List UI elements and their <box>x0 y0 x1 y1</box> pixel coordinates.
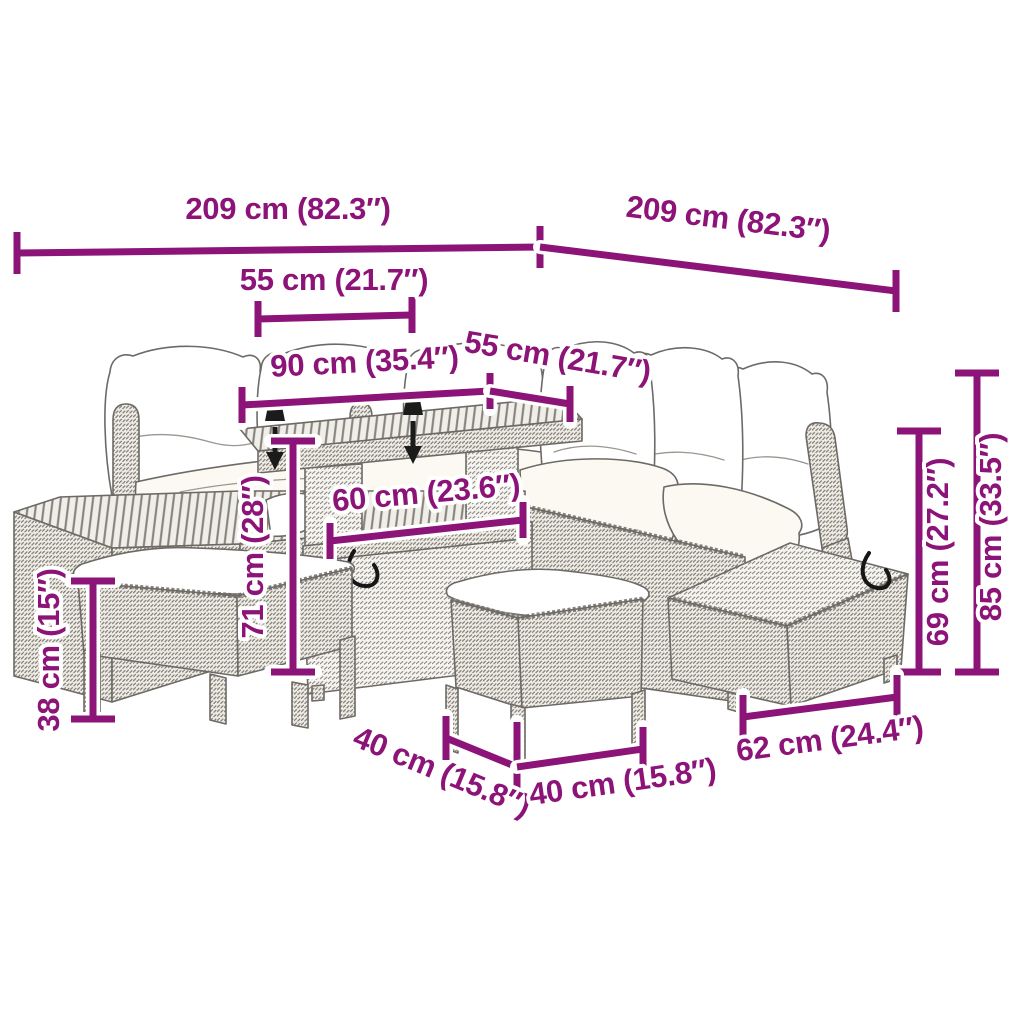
stool-leg <box>210 674 226 724</box>
front-stool <box>446 569 649 766</box>
dimension-seat-frame-height: 69 cm (27.2″) <box>897 431 955 672</box>
stool-leg <box>340 636 355 719</box>
dimension-total-height: 85 cm (33.5″) <box>955 373 1008 672</box>
stool-leg <box>292 682 308 728</box>
dimension-diagram-page: 209 cm (82.3″) 209 cm (82.3″) 55 cm (21.… <box>0 0 1024 1024</box>
dimension-seat-width: 55 cm (21.7″) <box>240 262 428 337</box>
storage-foot <box>312 685 324 701</box>
dimension-stool-width: 40 cm (15.8″) <box>517 727 718 812</box>
dimension-label: 38 cm (15″) <box>31 568 66 731</box>
dimension-label: 85 cm (33.5″) <box>973 433 1008 621</box>
dimension-label: 55 cm (21.7″) <box>240 262 428 297</box>
furniture-line-art <box>14 342 908 766</box>
dimension-label: 209 cm (82.3″) <box>624 189 832 249</box>
dimension-label: 71 cm (28″) <box>235 475 270 638</box>
diagram-canvas: 209 cm (82.3″) 209 cm (82.3″) 55 cm (21.… <box>0 0 1024 1024</box>
dimension-stool-depth: 40 cm (15.8″) <box>348 716 536 824</box>
dimension-overall-depth-right: 209 cm (82.3″) <box>540 189 896 312</box>
dimension-label: 69 cm (27.2″) <box>920 458 955 646</box>
dimension-label: 209 cm (82.3″) <box>185 191 390 226</box>
stool-front-right-face <box>518 599 643 708</box>
